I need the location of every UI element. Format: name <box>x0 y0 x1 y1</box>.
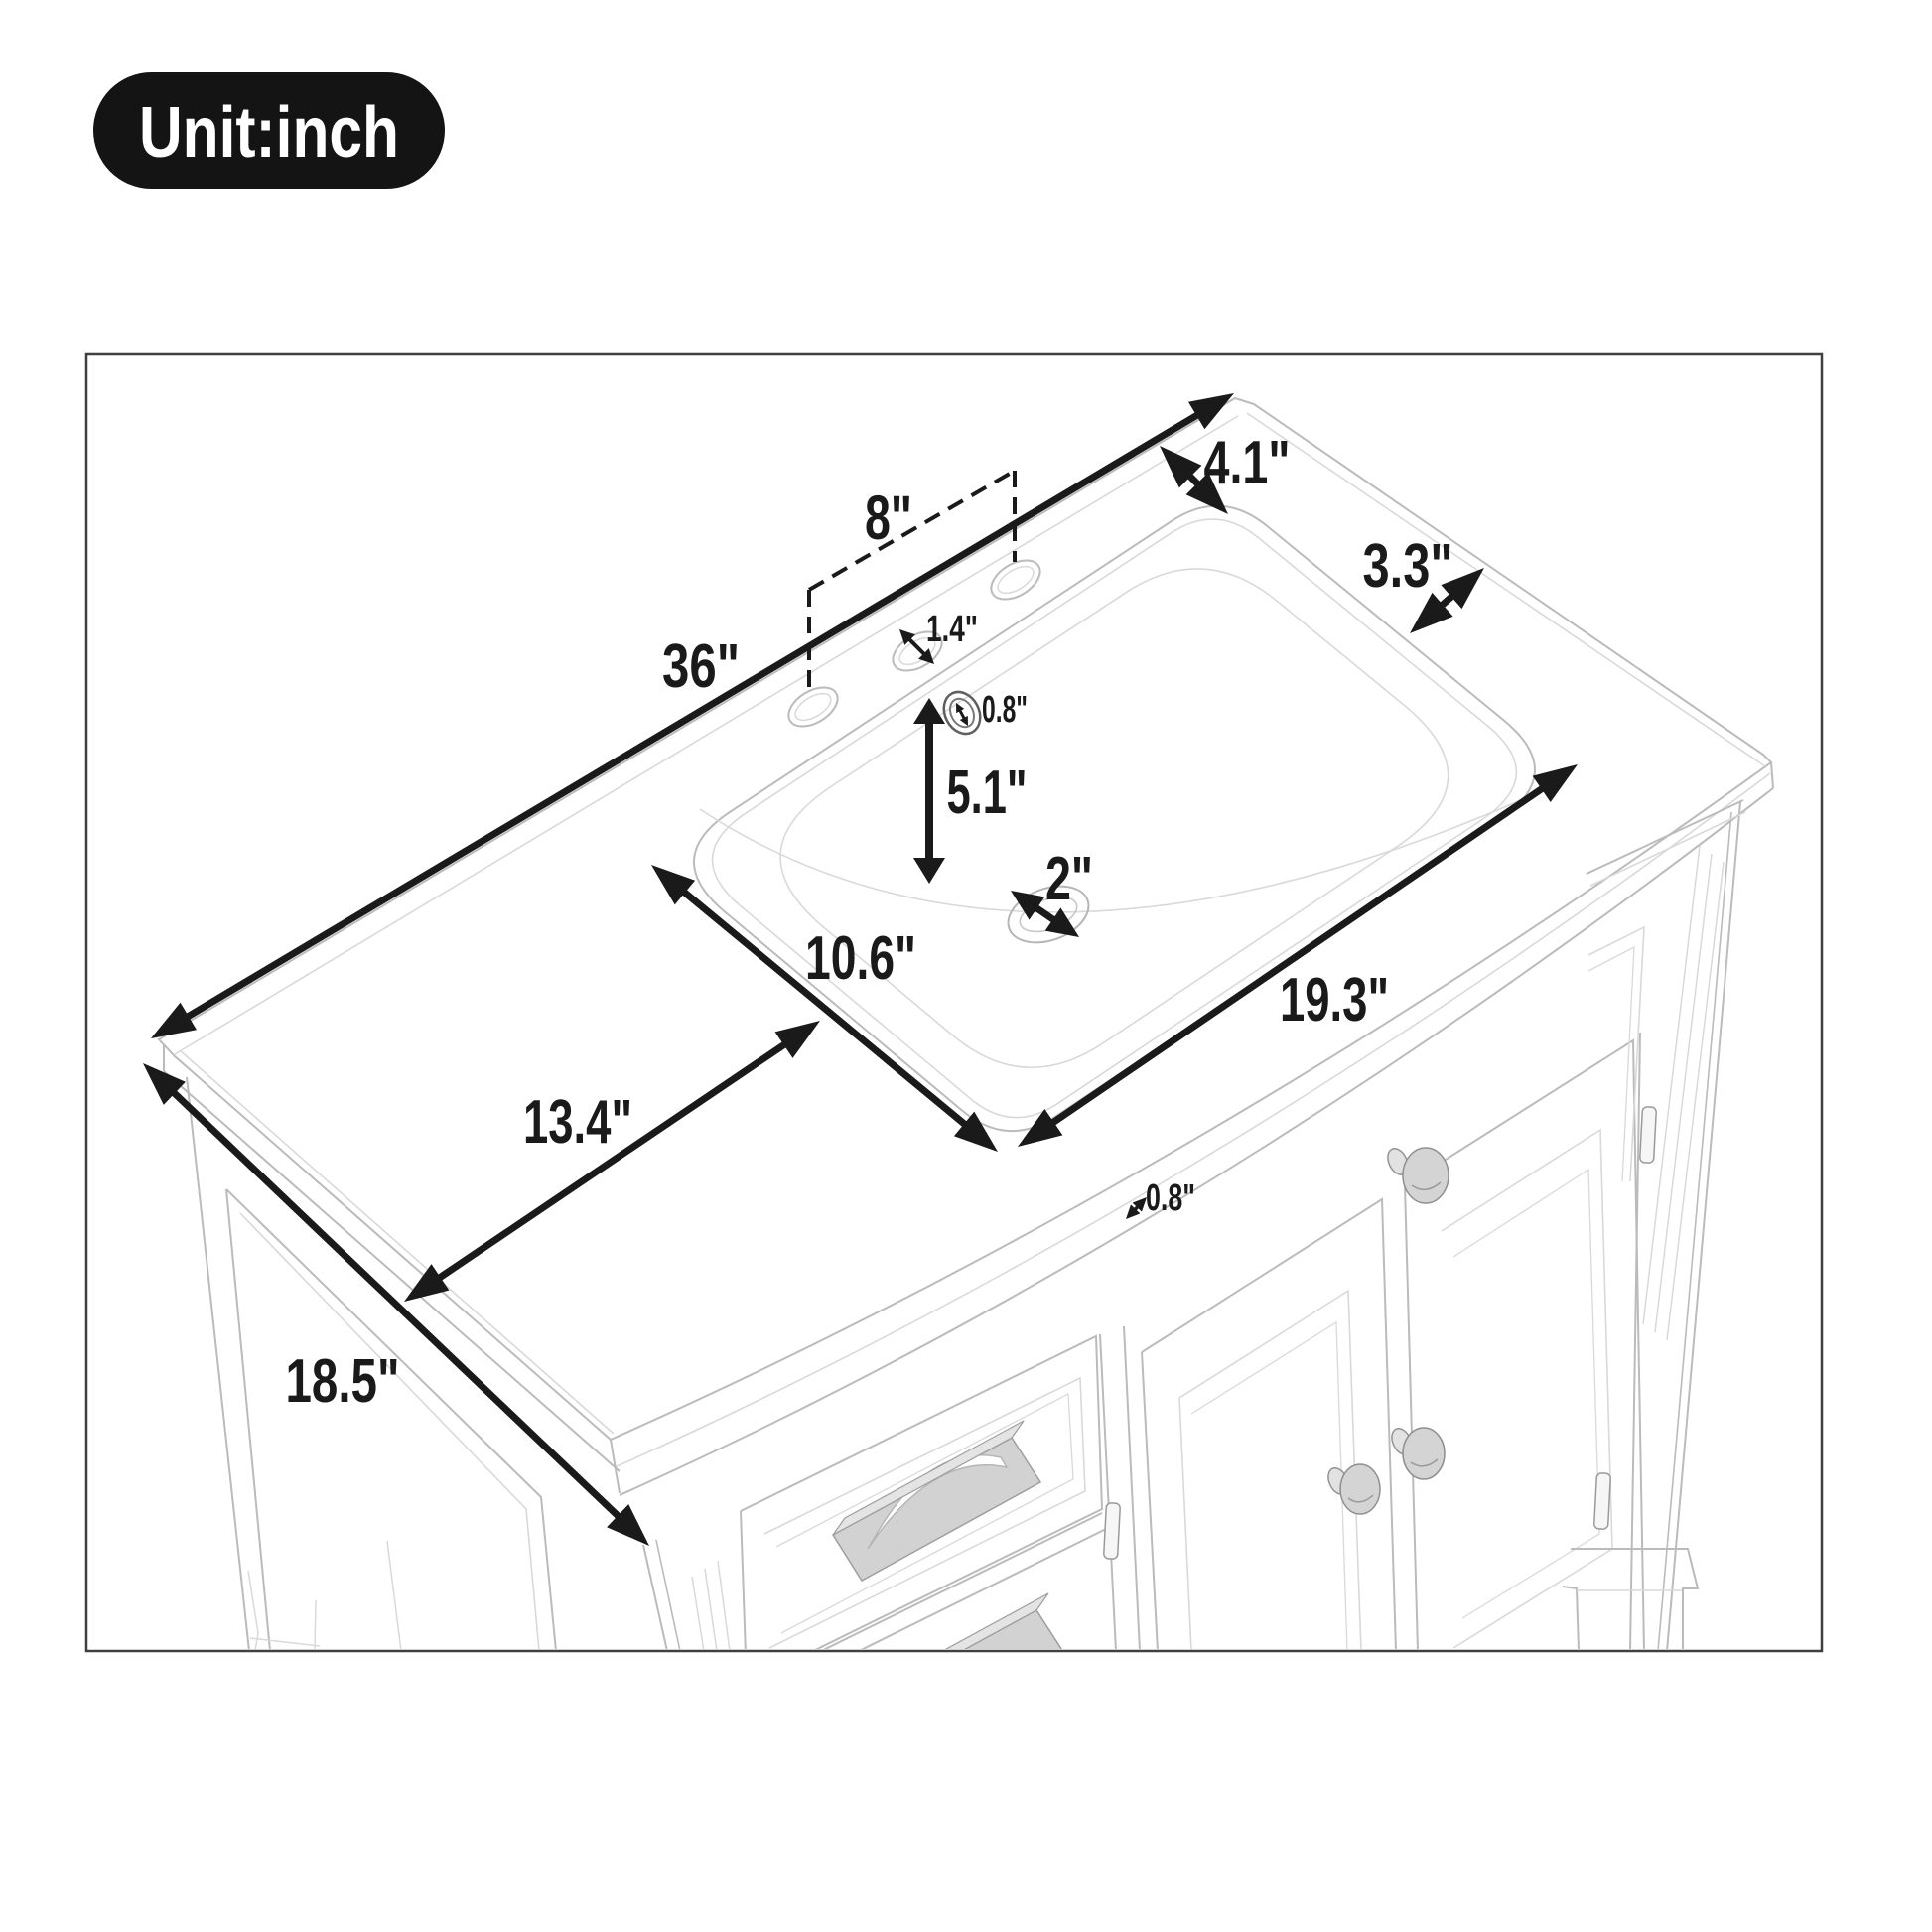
svg-text:2": 2" <box>1045 845 1093 913</box>
svg-text:0.8": 0.8" <box>982 689 1028 731</box>
svg-text:10.6": 10.6" <box>805 924 916 993</box>
svg-text:0.8": 0.8" <box>1146 1177 1195 1219</box>
svg-text:19.3": 19.3" <box>1280 966 1389 1035</box>
svg-text:1.4": 1.4" <box>926 609 978 650</box>
svg-text:3.3": 3.3" <box>1363 532 1453 601</box>
svg-text:5.1": 5.1" <box>947 759 1028 827</box>
svg-text:36": 36" <box>662 632 740 701</box>
svg-text:Unit:inch: Unit:inch <box>139 93 399 173</box>
svg-text:18.5": 18.5" <box>286 1347 400 1416</box>
svg-text:13.4": 13.4" <box>523 1088 632 1157</box>
svg-text:8": 8" <box>865 483 912 553</box>
svg-text:4.1": 4.1" <box>1204 429 1291 497</box>
